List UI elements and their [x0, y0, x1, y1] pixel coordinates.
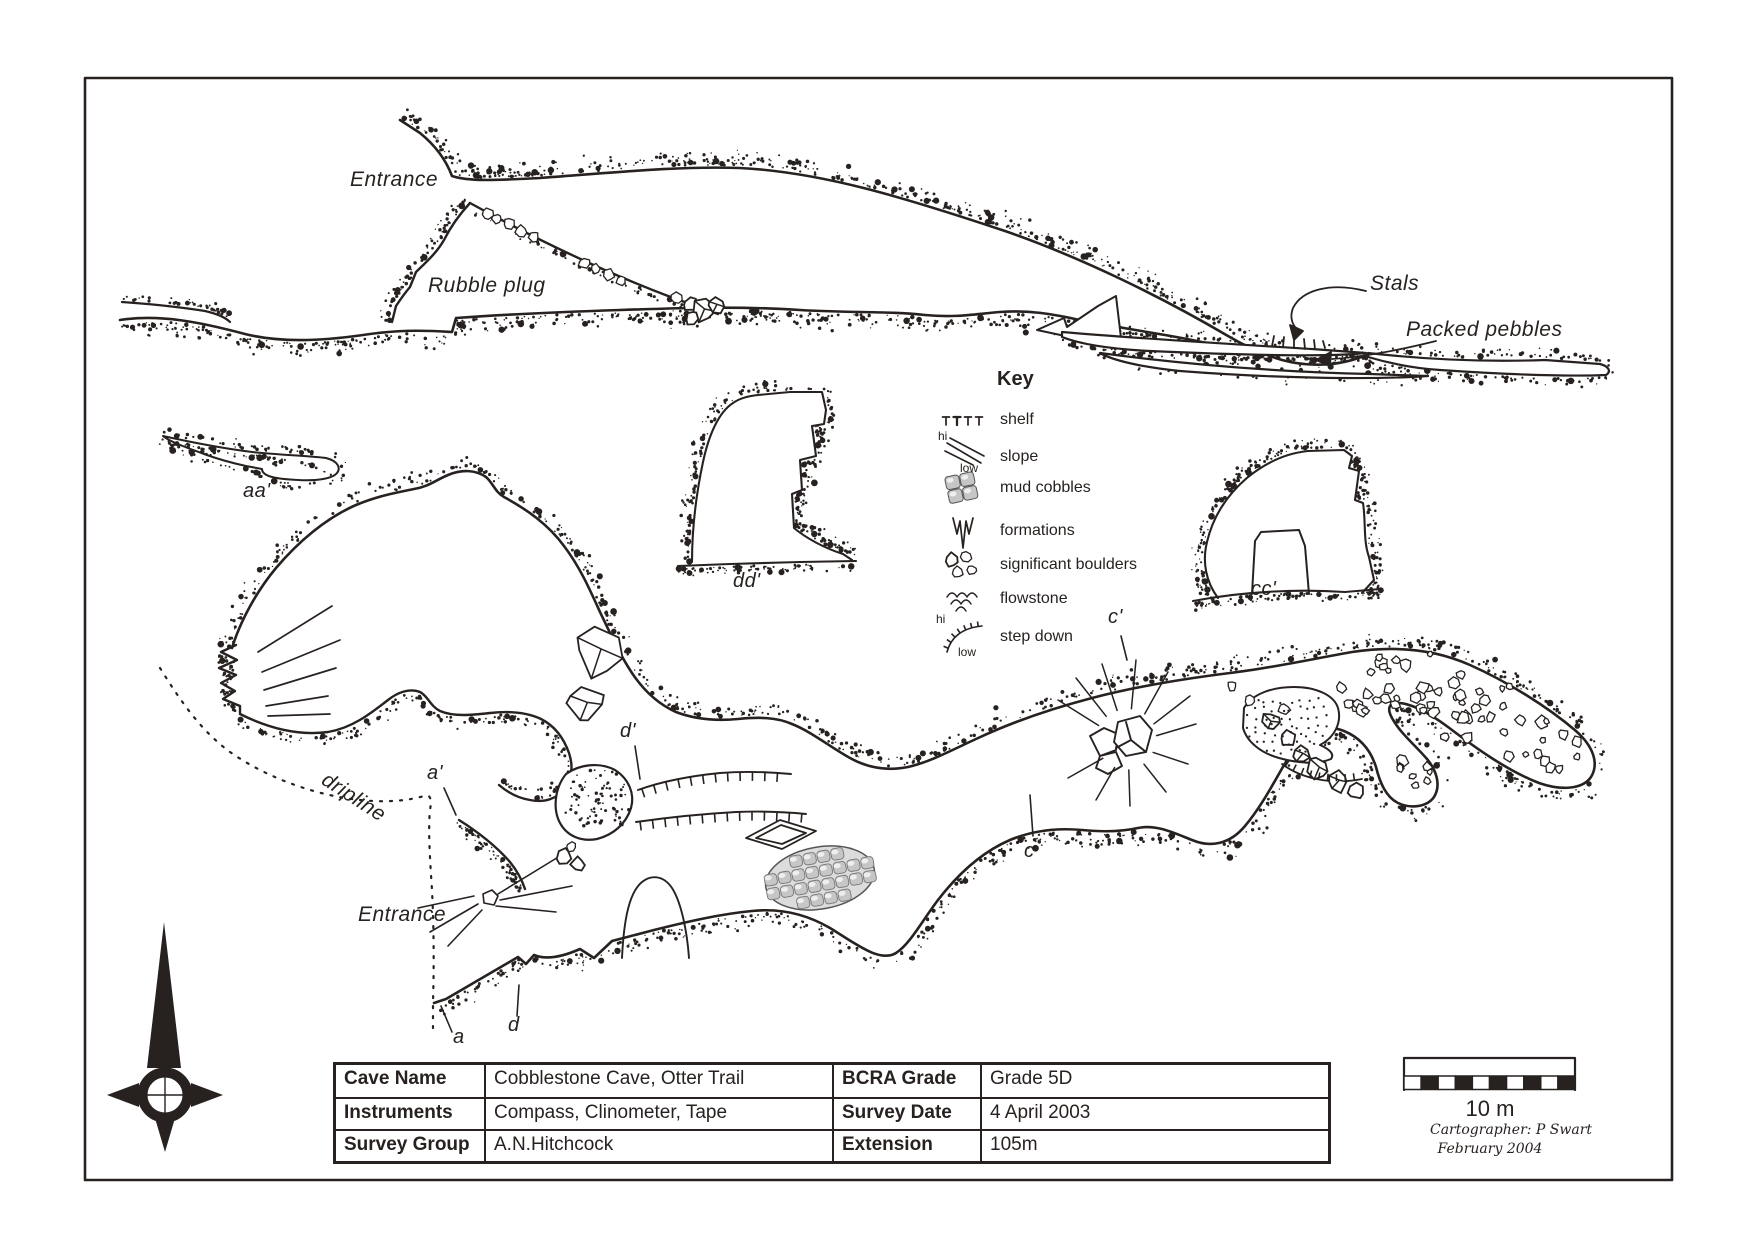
section-c-label: c — [1024, 840, 1035, 863]
stals-arrow — [1290, 287, 1366, 340]
step-low-label: low — [958, 645, 976, 659]
rubble-plug-left-edge — [392, 203, 470, 322]
key-step-down-label: step down — [1000, 628, 1073, 646]
date-credit: February 2004 — [1430, 1141, 1550, 1157]
slope-low-label: low — [960, 461, 978, 475]
cross-section-cc — [1205, 450, 1374, 598]
mud-cobbles-icon — [944, 471, 978, 503]
survey-data-table: Cave Name Cobblestone Cave, Otter Trail … — [333, 1062, 1331, 1164]
section-dd-label: dd' — [733, 570, 761, 593]
significant-boulders-icon — [946, 552, 977, 577]
slope-lines — [258, 606, 340, 716]
key-boulders-label: significant boulders — [1000, 556, 1137, 574]
floor-hump — [622, 877, 689, 958]
map-drawing — [0, 0, 1755, 1242]
entrance-squeeze-star — [418, 856, 572, 946]
table-header-cave-name: Cave Name — [336, 1065, 484, 1097]
rubble-plug-label: Rubble plug — [428, 274, 546, 298]
packed-pebbles-label: Packed pebbles — [1406, 318, 1562, 342]
table-header-instruments: Instruments — [336, 1097, 484, 1129]
diamond-feature — [746, 820, 816, 849]
section-d-prime-label: d' — [620, 720, 636, 743]
key-slope-label: slope — [1000, 448, 1038, 466]
starburst-boulders — [1090, 716, 1152, 774]
mud-patch — [1243, 687, 1339, 763]
dripline-dotted — [160, 668, 434, 1035]
section-cc-label: cc' — [1251, 578, 1276, 601]
entrance-top-label: Entrance — [350, 168, 438, 192]
cave-walls — [85, 78, 1672, 1180]
stals-passage-wedge — [1062, 332, 1366, 355]
table-header-survey-group: Survey Group — [336, 1129, 484, 1161]
table-value-survey-group: A.N.Hitchcock — [484, 1129, 832, 1161]
section-c-prime-label: c' — [1108, 606, 1123, 629]
slope-hi-label: hi — [938, 429, 947, 443]
key-title: Key — [997, 368, 1034, 391]
map-border — [85, 78, 1672, 1180]
key-shelf-label: shelf — [1000, 411, 1034, 429]
stals-label: Stals — [1370, 272, 1419, 296]
table-header-extension: Extension — [832, 1129, 980, 1161]
section-d-label: d — [508, 1014, 520, 1037]
key-mud-cobbles-label: mud cobbles — [1000, 479, 1091, 497]
table-value-cave-name: Cobblestone Cave, Otter Trail — [484, 1065, 832, 1097]
table-header-bcra-grade: BCRA Grade — [832, 1065, 980, 1097]
entrance-bottom-label: Entrance — [358, 903, 446, 927]
section-a-prime-label: a' — [427, 762, 443, 785]
cross-section-dd-floor — [678, 561, 856, 566]
table-value-survey-date: 4 April 2003 — [980, 1097, 1328, 1129]
section-aa-label: aa' — [243, 480, 271, 503]
table-value-extension: 105m — [980, 1129, 1328, 1161]
rock-pillar-nook — [556, 765, 633, 840]
table-header-survey-date: Survey Date — [832, 1097, 980, 1129]
scale-bar — [1404, 1058, 1575, 1090]
table-value-instruments: Compass, Clinometer, Tape — [484, 1097, 832, 1129]
flowstone-icon — [947, 593, 977, 611]
cross-section-dd — [692, 392, 852, 562]
chamber-bottom-wall — [240, 690, 571, 801]
section-a-label: a — [453, 1026, 465, 1049]
north-arrow — [107, 922, 223, 1152]
key-flowstone-label: flowstone — [1000, 590, 1068, 608]
cave-survey-map: Entrance Rubble plug Stals Packed pebble… — [0, 0, 1755, 1242]
key-formations-label: formations — [1000, 522, 1075, 540]
step-hi-label: hi — [936, 612, 945, 626]
formations-icon — [953, 518, 973, 548]
table-value-bcra-grade: Grade 5D — [980, 1065, 1328, 1097]
cartographer-credit: Cartographer: P Swart — [1430, 1122, 1550, 1138]
scale-bar-label: 10 m — [1455, 1096, 1525, 1122]
shelf-icon — [943, 417, 983, 425]
